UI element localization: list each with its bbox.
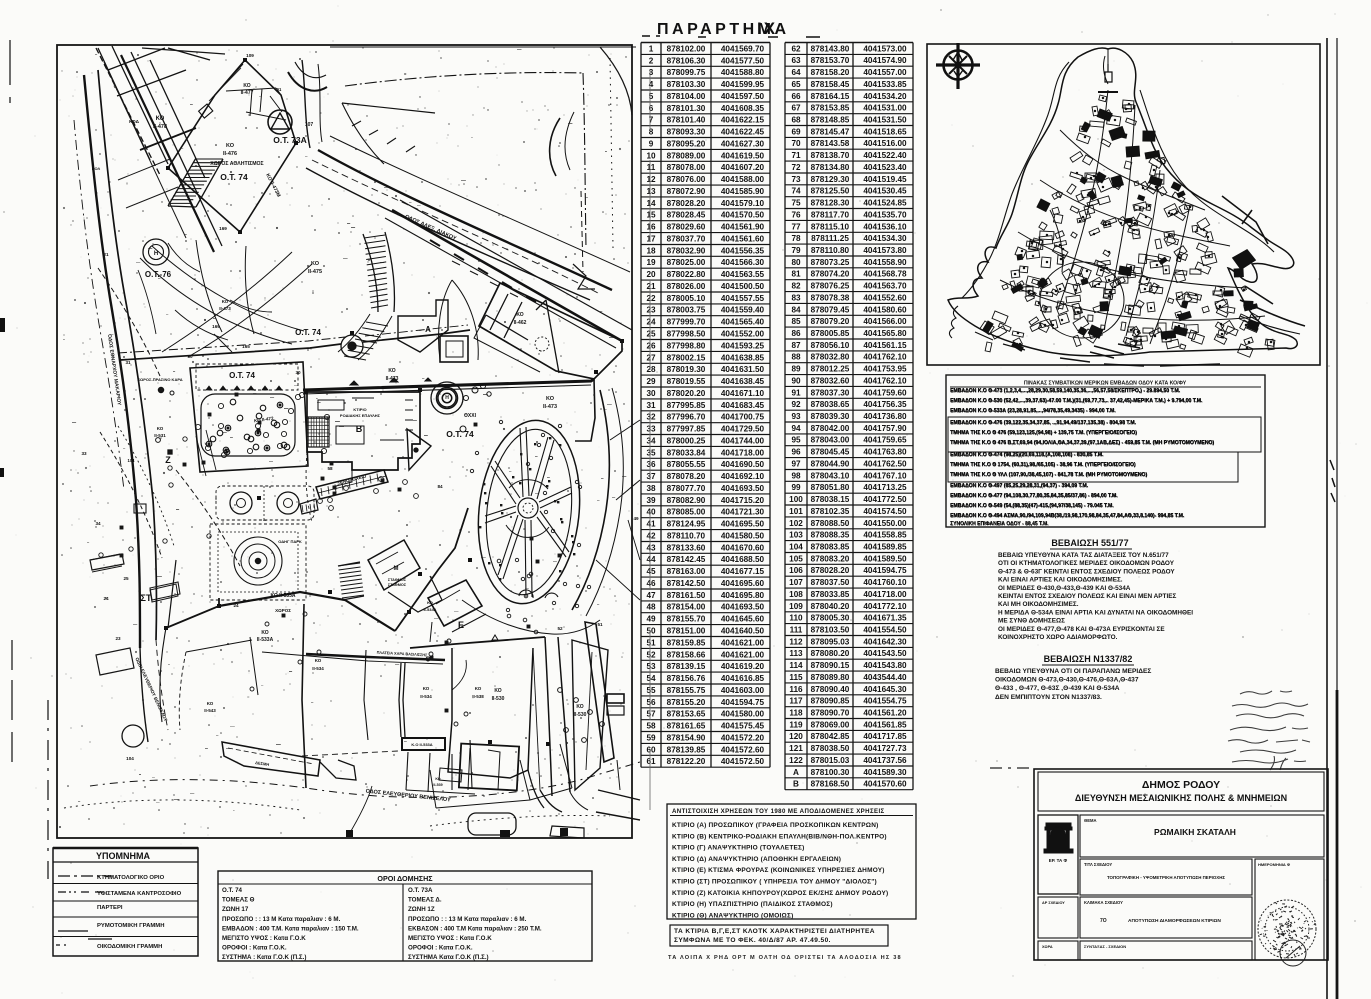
svg-text:878078.38: 878078.38 [811, 293, 850, 302]
svg-text:11: 11 [647, 163, 656, 172]
svg-text:ΤΟΜΕΑΣ Δ.: ΤΟΜΕΑΣ Δ. [408, 897, 442, 904]
svg-text:22: 22 [646, 294, 656, 303]
svg-text:ΚΤΙΡΙΟ (Γ) ΑΝΑΨΥΚΤΗΡΙΟ (ΤΟΥ: ΚΤΙΡΙΟ (Γ) ΑΝΑΨΥΚΤΗΡΙΟ (ΤΟΥΑΛΕΤΕΣ) [672, 845, 805, 852]
svg-text:ΟΙ ΜΕΡΙΔΕΣ Θ-477,Θ-478 ΚΑΙ Θ-4: ΟΙ ΜΕΡΙΔΕΣ Θ-477,Θ-478 ΚΑΙ Θ-473Α ΕΥΡΙΣΚ… [998, 626, 1165, 633]
svg-text:878153.85: 878153.85 [811, 104, 850, 113]
svg-text:169: 169 [212, 324, 220, 329]
svg-text:Ο.Τ. 73Α: Ο.Τ. 73Α [273, 135, 307, 145]
svg-text:4041593.25: 4041593.25 [721, 341, 765, 350]
svg-text:116: 116 [789, 685, 803, 694]
svg-text:ΘΧΧΙ: ΘΧΧΙ [464, 413, 477, 419]
svg-text:ΙΙ-543: ΙΙ-543 [204, 708, 216, 713]
svg-text:52: 52 [557, 626, 563, 631]
svg-text:878110.70: 878110.70 [667, 531, 706, 540]
svg-text:ΕΜΒΑΔΟΝ Κ.Ο Θ-497 (85,25,29,28: ΕΜΒΑΔΟΝ Κ.Ο Θ-497 (85,25,29,28,31,(94,37… [950, 483, 1089, 489]
svg-text:ΚΟΛ: ΚΟΛ [92, 166, 101, 171]
svg-text:ΑΝΤΙΣΤΟΙΧΙΣΗ ΧΡΗΣΕΩΝ ΤΟΥ 1980: ΑΝΤΙΣΤΟΙΧΙΣΗ ΧΡΗΣΕΩΝ ΤΟΥ 1980 ΜΕ ΑΠΟΔΙΔΟ… [672, 808, 885, 815]
svg-text:ΟΡΟΦΟΙ : Κατα Γ.Ο.Κ.: ΟΡΟΦΟΙ : Κατα Γ.Ο.Κ. [408, 945, 473, 952]
svg-text:ΠΑΡΤΕΡΙ: ΠΑΡΤΕΡΙ [97, 905, 123, 911]
svg-text:4041622.15: 4041622.15 [721, 116, 765, 125]
svg-text:112: 112 [789, 637, 803, 646]
svg-text:878158.20: 878158.20 [811, 68, 850, 77]
svg-text:878138.70: 878138.70 [811, 151, 850, 160]
svg-text:60: 60 [646, 745, 656, 754]
svg-text:8: 8 [649, 128, 654, 137]
svg-text:ΡΩΜΑΙΚΗ ΣΚΑΤΑΛΗ: ΡΩΜΑΙΚΗ ΣΚΑΤΑΛΗ [1154, 827, 1236, 837]
svg-text:ΒΕΒΑΙΩΣΗ Ν1337/82: ΒΕΒΑΙΩΣΗ Ν1337/82 [1044, 654, 1133, 664]
svg-text:ΟΙΚΟΔΟΜΙΚΗ ΓΡΑΜΜΗ: ΟΙΚΟΔΟΜΙΚΗ ΓΡΑΜΜΗ [97, 944, 162, 950]
svg-text:30: 30 [295, 370, 301, 375]
svg-text:90: 90 [791, 376, 801, 385]
svg-text:878002.15: 878002.15 [667, 353, 706, 362]
svg-text:4041516.00: 4041516.00 [863, 139, 907, 148]
svg-text:4041585.90: 4041585.90 [721, 187, 765, 196]
svg-text:878122.20: 878122.20 [667, 757, 706, 766]
svg-text:26: 26 [646, 341, 656, 350]
svg-text:878083.85: 878083.85 [811, 542, 850, 551]
svg-text:4041557.55: 4041557.55 [721, 294, 765, 303]
svg-text:ΙΙ-531: ΙΙ-531 [154, 433, 166, 438]
svg-text:ΚΟ: ΚΟ [475, 686, 482, 691]
svg-text:104: 104 [789, 542, 803, 551]
svg-text:ΟΡΟΙ ΔΟΜΗΣΗΣ: ΟΡΟΙ ΔΟΜΗΣΗΣ [377, 874, 433, 883]
svg-text:81: 81 [791, 270, 801, 279]
svg-text:ΠΡΟΣΩΠΟ : : 13 Μ Κατα παραλι: ΠΡΟΣΩΠΟ : : 13 Μ Κατα παραλιαν : 6 Μ. [408, 916, 527, 923]
svg-text:A: A [793, 768, 799, 777]
svg-text:878042.00: 878042.00 [811, 424, 850, 433]
svg-text:165: 165 [242, 344, 250, 349]
svg-text:878079.20: 878079.20 [811, 317, 850, 326]
svg-text:Η ΜΕΡΙΔΑ Θ-534Α ΕΙΝΑΙ ΑΡΤΙΑ ΚΑ: Η ΜΕΡΙΔΑ Θ-534Α ΕΙΝΑΙ ΑΡΤΙΑ ΚΑΙ ΔΥΝΑΤΑΙ … [998, 609, 1193, 616]
svg-text:4041631.50: 4041631.50 [721, 365, 765, 374]
svg-text:878168.50: 878168.50 [811, 780, 850, 789]
svg-text:ΤΜΗΜΑ ΤΗΣ Κ.Ο Θ ΥΛΛ (107,90,/3: ΤΜΗΜΑ ΤΗΣ Κ.Ο Θ ΥΛΛ (107,90,/38,45,107) … [950, 472, 1147, 478]
svg-text:36: 36 [646, 460, 656, 469]
svg-text:38: 38 [646, 484, 656, 493]
svg-text:113: 113 [789, 649, 803, 658]
svg-text:4041753.95: 4041753.95 [863, 365, 907, 374]
svg-text:878045.45: 878045.45 [811, 448, 850, 457]
svg-text:877998.50: 877998.50 [667, 330, 706, 339]
svg-text:3: 3 [649, 68, 654, 77]
svg-text:ΣΥΝΟΛΙΚΗ ΕΠΙΦΑΝΕΙΑ ΟΔΟΥ - 88,4: ΣΥΝΟΛΙΚΗ ΕΠΙΦΑΝΕΙΑ ΟΔΟΥ - 88,45 Τ.Μ. [950, 521, 1049, 527]
svg-text:4041543.50: 4041543.50 [863, 649, 907, 658]
svg-text:21: 21 [646, 282, 656, 291]
svg-text:100: 100 [789, 495, 803, 504]
svg-text:878012.25: 878012.25 [811, 365, 850, 374]
svg-text:4041690.50: 4041690.50 [721, 460, 765, 469]
svg-text:Ο.Τ. 74: Ο.Τ. 74 [446, 429, 474, 439]
svg-text:878142.50: 878142.50 [667, 579, 706, 588]
svg-text:4041594.75: 4041594.75 [863, 566, 907, 575]
svg-text:878088.50: 878088.50 [811, 519, 850, 528]
svg-text:122: 122 [789, 756, 803, 765]
svg-text:4041645.30: 4041645.30 [863, 685, 907, 694]
svg-text:877995.85: 877995.85 [667, 401, 706, 410]
svg-text:ΕΡ. ΤΑ Φ: ΕΡ. ΤΑ Φ [1049, 858, 1068, 863]
svg-text:29: 29 [646, 377, 656, 386]
svg-text:ΣΥΝΤΑΞΑΣ - ΣΧΕΔΙΟΝ: ΣΥΝΤΑΞΑΣ - ΣΧΕΔΙΟΝ [1084, 944, 1126, 949]
svg-text:4041580.00: 4041580.00 [721, 710, 765, 719]
svg-text:33: 33 [81, 451, 87, 456]
svg-text:878095.20: 878095.20 [667, 139, 706, 148]
svg-text:4041574.90: 4041574.90 [863, 56, 907, 65]
svg-text:55: 55 [646, 686, 656, 695]
svg-text:4041524.85: 4041524.85 [863, 199, 907, 208]
svg-text:878051.80: 878051.80 [811, 483, 850, 492]
svg-text:82: 82 [791, 282, 801, 291]
svg-text:ΕΜΒΑΔΟΝ Κ.Ο Θ-533Α (23,28,91,8: ΕΜΒΑΔΟΝ Κ.Ο Θ-533Α (23,28,91,85,...,94/7… [950, 408, 1116, 414]
svg-text:71: 71 [791, 151, 801, 160]
svg-text:4041531.50: 4041531.50 [863, 116, 907, 125]
svg-text:84: 84 [437, 484, 443, 489]
svg-text:ΚΟ: ΚΟ [516, 312, 523, 318]
svg-text:ΒΕΒΑΙΩ ΥΠΕΥΘΥΝΑ ΟΤΙ ΟΙ ΠΑΡΑΠΑΝ: ΒΕΒΑΙΩ ΥΠΕΥΘΥΝΑ ΟΤΙ ΟΙ ΠΑΡΑΠΑΝΩ ΜΕΡΙΔΕΣ [995, 668, 1151, 675]
svg-text:878145.47: 878145.47 [811, 127, 850, 136]
svg-text:878090.15: 878090.15 [811, 661, 850, 670]
svg-text:83: 83 [791, 293, 801, 302]
svg-text:877996.70: 877996.70 [667, 413, 706, 422]
svg-text:ΣΥΣΤΗΜΑ : Κατα Γ.Ο.Κ (Π.Σ.): ΣΥΣΤΗΜΑ : Κατα Γ.Ο.Κ (Π.Σ.) [222, 954, 306, 961]
svg-text:ΕΜΒΑΔΟΝ Κ.Ο Θ-477 (94,108,30,7: ΕΜΒΑΔΟΝ Κ.Ο Θ-477 (94,108,30,77,80,35,84… [950, 493, 1118, 499]
svg-text:ΘΕΜΑ: ΘΕΜΑ [1084, 818, 1097, 823]
svg-text:ΜΕΓΙΣΤΟ ΥΨΟΣ : Κατα Γ.Ο.Κ: ΜΕΓΙΣΤΟ ΥΨΟΣ : Κατα Γ.Ο.Κ [408, 935, 492, 942]
svg-text:ΚΟ: ΚΟ [427, 600, 433, 605]
svg-text:4041772.50: 4041772.50 [863, 495, 907, 504]
svg-text:69: 69 [791, 127, 801, 136]
svg-text:4041589.50: 4041589.50 [863, 554, 907, 563]
svg-text:4041695.60: 4041695.60 [721, 579, 765, 588]
svg-text:37: 37 [646, 472, 656, 481]
svg-text:4041744.00: 4041744.00 [721, 436, 765, 445]
svg-text:9: 9 [649, 139, 654, 148]
svg-text:58: 58 [327, 466, 333, 471]
svg-text:Ο.Τ.-76: Ο.Τ.-76 [145, 270, 172, 279]
svg-text:4041530.45: 4041530.45 [863, 187, 907, 196]
svg-text:878044.90: 878044.90 [811, 459, 850, 468]
svg-text:117: 117 [789, 697, 803, 706]
svg-text:ΙΙ-462: ΙΙ-462 [514, 320, 527, 326]
svg-text:105: 105 [789, 554, 803, 563]
svg-text:4041534.30: 4041534.30 [863, 234, 907, 243]
svg-text:878025.00: 878025.00 [667, 258, 706, 267]
svg-text:169: 169 [219, 226, 227, 231]
svg-text:4041762.10: 4041762.10 [863, 376, 907, 385]
svg-text:72: 72 [791, 163, 801, 172]
svg-text:878005.30: 878005.30 [811, 614, 850, 623]
svg-text:4041588.80: 4041588.80 [721, 68, 765, 77]
svg-text:4041565.80: 4041565.80 [863, 329, 907, 338]
svg-text:4041621.00: 4041621.00 [721, 650, 765, 659]
svg-text:878073.25: 878073.25 [811, 258, 850, 267]
svg-text:52: 52 [646, 650, 656, 659]
svg-text:99: 99 [791, 483, 801, 492]
svg-text:ΚΤΙΡΙΟ (Η) ΥΠΑΣΠΙΣΤΗΡΙΟ (ΠΑ: ΚΤΙΡΙΟ (Η) ΥΠΑΣΠΙΣΤΗΡΙΟ (ΠΑΙΔΙΚΟΣ ΣΤΑΘΜΟ… [672, 901, 833, 908]
svg-text:4041619.50: 4041619.50 [721, 151, 765, 160]
svg-text:4041736.80: 4041736.80 [863, 412, 907, 421]
svg-text:65: 65 [791, 80, 801, 89]
svg-text:878080.20: 878080.20 [811, 649, 850, 658]
svg-text:Μ: Μ [394, 566, 399, 572]
svg-text:878153.65: 878153.65 [667, 710, 706, 719]
svg-text:4043544.40: 4043544.40 [863, 673, 907, 682]
svg-text:108: 108 [789, 590, 803, 599]
svg-text:ΚΟ: ΚΟ [388, 368, 395, 374]
svg-text:878143.58: 878143.58 [811, 139, 850, 148]
svg-text:48: 48 [646, 603, 656, 612]
svg-text:878103.50: 878103.50 [811, 626, 850, 635]
svg-text:41: 41 [646, 520, 656, 529]
svg-text:4041608.35: 4041608.35 [721, 104, 765, 113]
svg-text:Α: Α [425, 325, 431, 334]
svg-text:13: 13 [646, 187, 656, 196]
svg-text:Ζ: Ζ [165, 455, 171, 465]
svg-text:878026.00: 878026.00 [667, 282, 706, 291]
svg-text:98: 98 [791, 471, 801, 480]
svg-text:ΚΟ: ΚΟ [494, 688, 501, 694]
svg-text:46: 46 [646, 579, 656, 588]
svg-text:10: 10 [646, 151, 656, 160]
svg-text:878005.10: 878005.10 [667, 294, 706, 303]
svg-text:4041570.60: 4041570.60 [863, 780, 907, 789]
svg-text:62: 62 [791, 44, 801, 53]
svg-text:118: 118 [789, 709, 803, 718]
svg-text:4041671.35: 4041671.35 [863, 614, 907, 623]
svg-text:878003.75: 878003.75 [667, 306, 706, 315]
svg-text:ΕΜΒΑΔΟΝ Κ.Ο Θ-494 ΑΣΜΑ,90,/94,: ΕΜΒΑΔΟΝ Κ.Ο Θ-494 ΑΣΜΑ,90,/94,109,94Β(38… [950, 513, 1185, 519]
svg-text:4041619.20: 4041619.20 [721, 662, 765, 671]
svg-text:ΣΤΑΘΜΟΣ: ΣΤΑΘΜΟΣ [388, 583, 407, 587]
svg-text:78: 78 [791, 234, 801, 243]
svg-text:4041561.15: 4041561.15 [863, 341, 907, 350]
svg-text:4041715.20: 4041715.20 [721, 496, 765, 505]
svg-text:878019.30: 878019.30 [667, 365, 706, 374]
svg-text:4041727.73: 4041727.73 [863, 744, 907, 753]
svg-text:ΚΟ: ΚΟ [243, 83, 250, 89]
svg-text:4041693.50: 4041693.50 [721, 484, 765, 493]
svg-text:4041759.65: 4041759.65 [863, 436, 907, 445]
svg-text:878139.15: 878139.15 [667, 662, 706, 671]
svg-text:ΟΤΙ ΟΙ ΚΤΗΜΑΤΟΛΟΓΙΚΕΣ ΜΕΡΙΔΕΣ: ΟΤΙ ΟΙ ΚΤΗΜΑΤΟΛΟΓΙΚΕΣ ΜΕΡΙΔΕΣ ΟΙΚΟΔΟΜΩΝ … [998, 560, 1175, 567]
svg-text:4041572.60: 4041572.60 [721, 745, 765, 754]
svg-text:80: 80 [791, 258, 801, 267]
svg-text:119: 119 [789, 720, 803, 729]
svg-text:ΟΙ ΜΕΡΙΔΕΣ Θ-430,Θ-433,Θ-439 Κ: ΟΙ ΜΕΡΙΔΕΣ Θ-430,Θ-433,Θ-439 ΚΑΙ Θ-534Α [998, 585, 1131, 592]
svg-text:ΕΜΒΑΔΟΝ : 400 Τ.Μ. Κατα παραλι: ΕΜΒΑΔΟΝ : 400 Τ.Μ. Κατα παραλιαν : 150 Τ… [222, 925, 359, 932]
svg-text:28: 28 [646, 365, 656, 374]
svg-text:4041534.20: 4041534.20 [863, 92, 907, 101]
svg-text:ΚΟ: ΚΟ [261, 630, 268, 636]
svg-text:878134.80: 878134.80 [811, 163, 850, 172]
svg-text:ΟΔΗΓ ΠΑΡΚ: ΟΔΗΓ ΠΑΡΚ [278, 539, 302, 544]
svg-text:34: 34 [95, 521, 101, 526]
svg-text:77: 77 [791, 222, 801, 231]
svg-text:ΚΟ: ΚΟ [423, 686, 430, 691]
svg-text:25: 25 [646, 330, 656, 339]
svg-text:878028.20: 878028.20 [667, 199, 706, 208]
svg-text:114: 114 [789, 661, 803, 670]
svg-text:4041607.20: 4041607.20 [721, 163, 765, 172]
svg-text:ΒΕΒΑΙΩ ΥΠΕΥΘΥΝΑ ΚΑΤΑ ΤΑΣ ΔΙΑΤΑ: ΒΕΒΑΙΩ ΥΠΕΥΘΥΝΑ ΚΑΤΑ ΤΑΣ ΔΙΑΤΑΞΕΙΣ ΤΟΥ Ν… [998, 552, 1169, 559]
svg-text:ΧΩΡΟΣ: ΧΩΡΟΣ [275, 608, 291, 613]
svg-text:ΕΚΒΑΣΟΝ : 400 Τ.Μ Κατα παραλι: ΕΚΒΑΣΟΝ : 400 Τ.Μ Κατα παραλιαν : 250 Τ.… [408, 925, 542, 932]
svg-text:120: 120 [789, 732, 803, 741]
svg-text:878133.60: 878133.60 [667, 543, 706, 552]
svg-text:878139.85: 878139.85 [667, 745, 706, 754]
svg-text:878128.30: 878128.30 [811, 199, 850, 208]
svg-text:878155.75: 878155.75 [667, 686, 706, 695]
svg-text:4041597.50: 4041597.50 [721, 92, 765, 101]
svg-text:ΤΜΗΜΑ ΤΗΣ Κ.Ο Θ 476 Β,ΣΤ,69,9: ΤΜΗΜΑ ΤΗΣ Κ.Ο Θ 476 Β,ΣΤ,69,94 (94,ΙΟΛΙΑ… [950, 440, 1214, 446]
svg-text:ΚΟ: ΚΟ [157, 426, 164, 431]
svg-text:878142.45: 878142.45 [667, 555, 706, 564]
svg-text:878090.70: 878090.70 [811, 709, 850, 718]
svg-text:4041603.00: 4041603.00 [721, 686, 765, 695]
svg-text:878156.76: 878156.76 [667, 674, 706, 683]
svg-text:106: 106 [789, 566, 803, 575]
svg-text:45: 45 [646, 567, 656, 576]
svg-text:4041616.85: 4041616.85 [721, 674, 765, 683]
svg-text:878032.90: 878032.90 [667, 246, 706, 255]
svg-text:79: 79 [791, 246, 801, 255]
svg-text:70: 70 [791, 139, 801, 148]
svg-text:27: 27 [646, 353, 656, 362]
svg-text:878115.10: 878115.10 [811, 222, 850, 231]
svg-text:878089.80: 878089.80 [811, 673, 850, 682]
svg-text:878158.45: 878158.45 [811, 80, 850, 89]
svg-text:4041561.85: 4041561.85 [863, 720, 907, 729]
svg-text:878111.25: 878111.25 [811, 234, 849, 243]
svg-text:4041772.10: 4041772.10 [863, 602, 907, 611]
svg-text:4041599.95: 4041599.95 [721, 80, 765, 89]
svg-text:ΙΙ-477: ΙΙ-477 [241, 90, 254, 96]
svg-text:4041762.10: 4041762.10 [863, 353, 907, 362]
svg-text:ΒΕΒΑΙΩΣΗ 551/77: ΒΕΒΑΙΩΣΗ 551/77 [1051, 538, 1128, 548]
svg-text:Ο.Τ. 74: Ο.Τ. 74 [229, 371, 255, 380]
svg-text:67: 67 [791, 104, 801, 113]
svg-text:ΙΙ-538: ΙΙ-538 [472, 694, 484, 699]
svg-text:34: 34 [646, 436, 656, 445]
svg-text:ΤΑ ΛΟΙΠΑ Χ ΡΗΔ ΟΡΤ Μ ΟΛΤΗ ΟΔ Ο: ΤΑ ΛΟΙΠΑ Χ ΡΗΔ ΟΡΤ Μ ΟΛΤΗ ΟΔ ΟΡΙΣΤΕΙ ΤΑ … [668, 955, 902, 961]
svg-text:878074.20: 878074.20 [811, 270, 850, 279]
svg-text:4041756.35: 4041756.35 [863, 400, 907, 409]
svg-text:4041556.35: 4041556.35 [721, 246, 765, 255]
svg-text:878101.30: 878101.30 [667, 104, 706, 113]
svg-text:ΙΙ-534: ΙΙ-534 [312, 666, 324, 671]
svg-text:4041531.00: 4041531.00 [863, 104, 907, 113]
svg-text:ΤΜΗΜΑ ΤΗΣ Κ.Ο Θ 1754, (60,31),: ΤΜΗΜΑ ΤΗΣ Κ.Ο Θ 1754, (60,31),98,/65,105… [950, 462, 1136, 468]
svg-text:4041500.50: 4041500.50 [721, 282, 765, 291]
svg-text:878055.55: 878055.55 [667, 460, 706, 469]
svg-text:ΚΟ: ΚΟ [222, 299, 229, 304]
svg-text:ΥΦΙΣΤΑΜΕΝΑ ΚΑΝΤΡΟΣΟΦΙΟ: ΥΦΙΣΤΑΜΕΝΑ ΚΑΝΤΡΟΣΟΦΙΟ [97, 891, 182, 897]
svg-text:878151.00: 878151.00 [667, 627, 706, 636]
svg-text:4041552.60: 4041552.60 [863, 293, 907, 302]
svg-text:878102.00: 878102.00 [667, 44, 706, 53]
svg-text:ΔΗΜΟΣ ΡΟΔΟΥ: ΔΗΜΟΣ ΡΟΔΟΥ [1142, 779, 1220, 791]
svg-text:ΚΟ: ΚΟ [156, 116, 165, 122]
svg-text:878078.20: 878078.20 [667, 472, 706, 481]
svg-text:878037.30: 878037.30 [811, 388, 850, 397]
svg-text:ΟΙΚΟΔΟΜΩΝ Θ-473,Θ-430,Θ-476,Θ-: ΟΙΚΟΔΟΜΩΝ Θ-473,Θ-430,Θ-476,Θ-63Α,Θ-437 [995, 677, 1139, 684]
svg-text:44: 44 [646, 555, 656, 564]
svg-text:878161.65: 878161.65 [667, 722, 706, 731]
svg-text:878043.10: 878043.10 [811, 471, 850, 480]
svg-text:878088.35: 878088.35 [811, 531, 850, 540]
svg-text:ΑΠΟΤΥΠΩΣΗ ΔΙΑΜΟΡΦΩΣΕΩΝ ΚΤΙΡΙ: ΑΠΟΤΥΠΩΣΗ ΔΙΑΜΟΡΦΩΣΕΩΝ ΚΤΙΡΙΩΝ [1128, 918, 1221, 924]
svg-text:4041638.85: 4041638.85 [721, 353, 765, 362]
svg-text:878019.55: 878019.55 [667, 377, 706, 386]
svg-text:4041558.85: 4041558.85 [863, 531, 907, 540]
svg-text:1: 1 [649, 44, 654, 53]
svg-text:59: 59 [646, 733, 656, 742]
svg-text:Ο.Τ. 73Α: Ο.Τ. 73Α [408, 887, 433, 894]
svg-text:ΙΙ-475: ΙΙ-475 [308, 269, 322, 275]
svg-text:ΔΙΕΥΘΥΝΣΗ ΜΕΣΑΙΩΝΙΚΗΣ ΠΟΛΗΣ &: ΔΙΕΥΘΥΝΣΗ ΜΕΣΑΙΩΝΙΚΗΣ ΠΟΛΗΣ & ΜΝΗΜΕΙΩΝ [1075, 793, 1287, 803]
svg-text:104: 104 [126, 756, 134, 761]
svg-text:878102.35: 878102.35 [811, 507, 850, 516]
svg-text:878032.80: 878032.80 [811, 353, 850, 362]
svg-text:ΚΤΙΡΙΟ (Α) ΠΡΟΣΩΠΙΚΟΥ (ΓΡΑΦ: ΚΤΙΡΙΟ (Α) ΠΡΟΣΩΠΙΚΟΥ (ΓΡΑΦΕΙΑ ΠΡΟΣΚΟΠΙΚ… [672, 822, 878, 829]
svg-text:75: 75 [791, 199, 801, 208]
svg-text:878089.00: 878089.00 [667, 151, 706, 160]
svg-text:4041563.55: 4041563.55 [721, 270, 765, 279]
svg-text:ΕΜΒΑΔΟΝ Κ.Ο Θ-530 (52,42,...,3: ΕΜΒΑΔΟΝ Κ.Ο Θ-530 (52,42,...,39,37,63)-4… [950, 398, 1203, 404]
svg-text:4041566.00: 4041566.00 [863, 317, 907, 326]
svg-text:Ο.Τ. 74: Ο.Τ. 74 [295, 328, 321, 337]
svg-text:4041573.00: 4041573.00 [863, 44, 907, 53]
svg-text:ΚΤΙΡΙΟ (Β) ΚΕΝΤΡΙΚΟ-ΡΟΔΙΑΚΗ: ΚΤΙΡΙΟ (Β) ΚΕΝΤΡΙΚΟ-ΡΟΔΙΑΚΗ ΕΠΑΥΛΗ(ΒΙΒ/Ν… [672, 833, 887, 840]
svg-text:ΙΙ-534Α: ΙΙ-534Α [423, 607, 436, 612]
svg-text:ΜΕΓΙΣΤΟ ΥΨΟΣ : Κατα Γ.Ο.Κ: ΜΕΓΙΣΤΟ ΥΨΟΣ : Κατα Γ.Ο.Κ [222, 935, 306, 942]
svg-text:30: 30 [646, 389, 656, 398]
svg-text:4041594.75: 4041594.75 [721, 698, 765, 707]
svg-text:4041729.50: 4041729.50 [721, 425, 765, 434]
svg-text:878083.20: 878083.20 [811, 554, 850, 563]
svg-text:ΚΟΙΝΟΧΡΗΣΤΟ ΧΩΡΟ ΑΔΙΑΜΟΡΦΩΤΟ.: ΚΟΙΝΟΧΡΗΣΤΟ ΧΩΡΟ ΑΔΙΑΜΟΡΦΩΤΟ. [998, 634, 1118, 641]
svg-text:B: B [793, 780, 799, 789]
svg-text:107: 107 [789, 578, 803, 587]
svg-text:4041522.40: 4041522.40 [863, 151, 907, 160]
svg-text:49: 49 [646, 615, 656, 624]
svg-text:4041568.78: 4041568.78 [863, 270, 907, 279]
svg-text:ΖΩΝΗ 1Ζ: ΖΩΝΗ 1Ζ [408, 906, 435, 913]
svg-text:4041558.90: 4041558.90 [863, 258, 907, 267]
svg-text:4041566.30: 4041566.30 [721, 258, 765, 267]
svg-text:878028.20: 878028.20 [811, 566, 850, 575]
svg-text:ΤΟΜΕΑΣ Θ: ΤΟΜΕΑΣ Θ [222, 897, 255, 904]
svg-text:96: 96 [791, 448, 801, 457]
svg-text:18: 18 [646, 246, 656, 255]
svg-text:87: 87 [791, 341, 801, 350]
svg-text:25: 25 [123, 576, 129, 581]
svg-text:4041642.30: 4041642.30 [863, 637, 907, 646]
svg-text:4041574.50: 4041574.50 [863, 507, 907, 516]
svg-text:4041759.60: 4041759.60 [863, 388, 907, 397]
svg-text:89: 89 [791, 365, 801, 374]
svg-text:Η: Η [445, 395, 449, 401]
svg-text:4041536.10: 4041536.10 [863, 222, 907, 231]
svg-text:Κ.Ο ΙΙ-533Α: Κ.Ο ΙΙ-533Α [411, 742, 432, 747]
svg-text:ΙΙ-473: ΙΙ-473 [543, 404, 557, 410]
svg-text:43: 43 [646, 543, 656, 552]
svg-text:ΚΟ: ΚΟ [311, 261, 320, 267]
svg-text:4041554.50: 4041554.50 [863, 626, 907, 635]
svg-text:878015.03: 878015.03 [811, 756, 850, 765]
svg-text:ΔΕΝ ΕΜΠΙΠΤΟΥΝ ΣΤΟΝ Ν1337/83.: ΔΕΝ ΕΜΠΙΠΤΟΥΝ ΣΤΟΝ Ν1337/83. [995, 694, 1102, 701]
svg-text:878000.25: 878000.25 [667, 436, 706, 445]
svg-text:4: 4 [649, 80, 654, 89]
